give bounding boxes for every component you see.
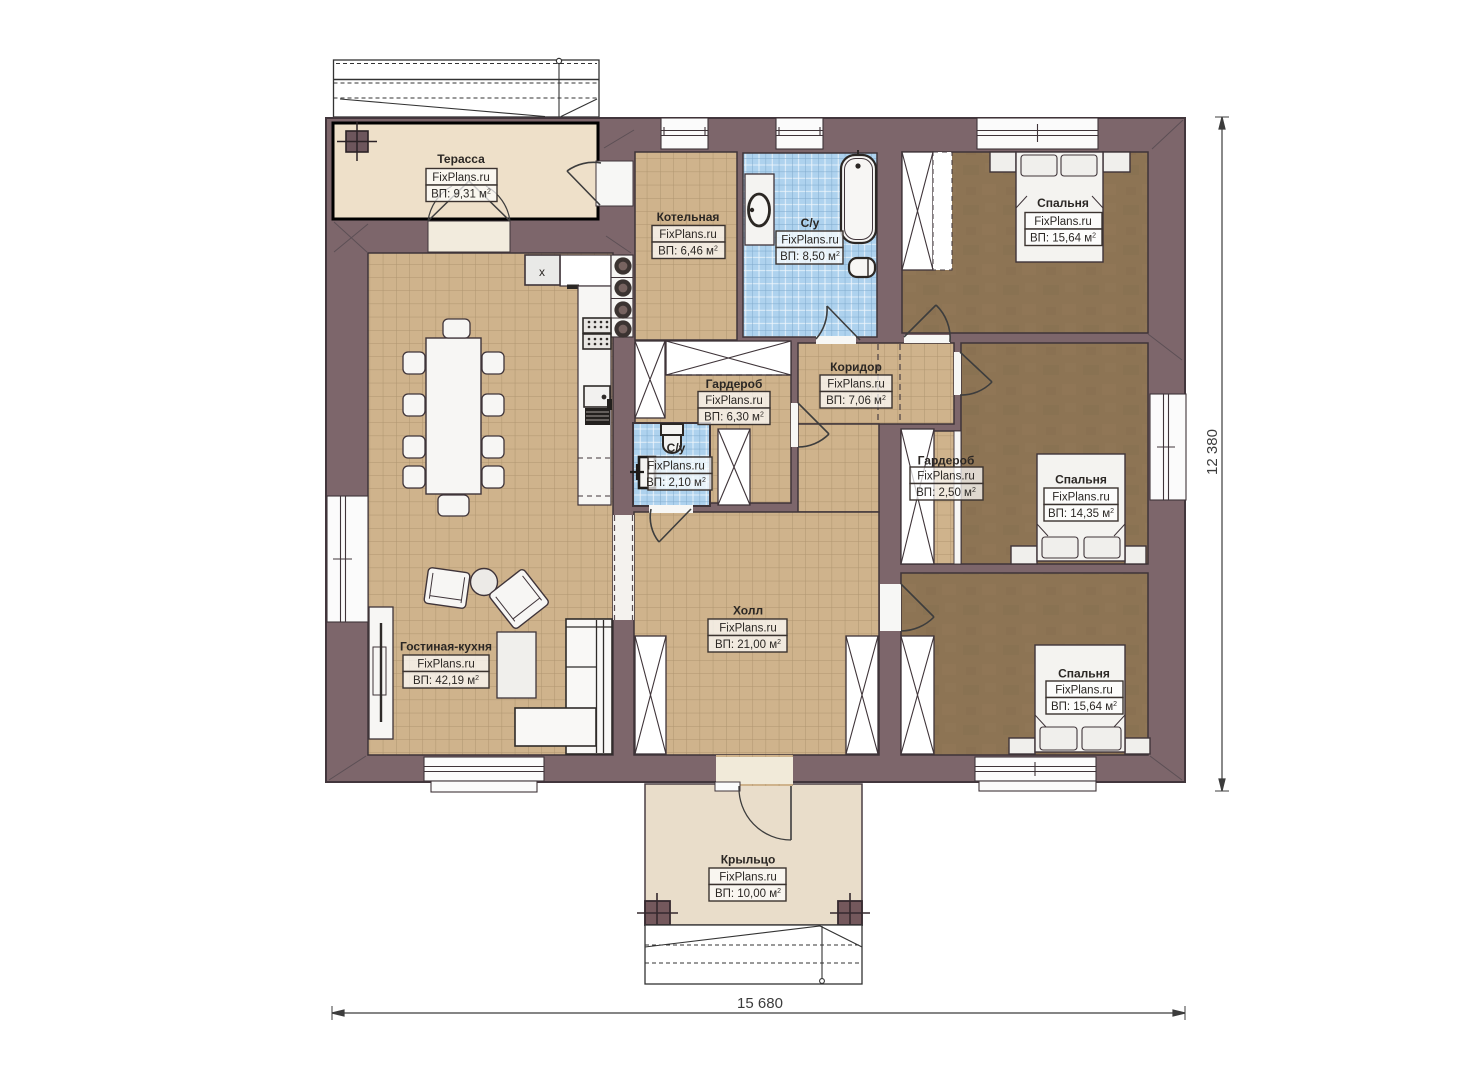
- svg-text:Спальня: Спальня: [1058, 667, 1110, 681]
- svg-text:FixPlans.ru: FixPlans.ru: [1055, 685, 1113, 697]
- svg-text:FixPlans.ru: FixPlans.ru: [647, 461, 705, 473]
- svg-text:Спальня: Спальня: [1055, 473, 1107, 487]
- svg-text:С/у: С/у: [667, 441, 686, 455]
- svg-text:Крыльцо: Крыльцо: [721, 853, 776, 867]
- svg-text:15 680: 15 680: [737, 995, 783, 1012]
- svg-text:Гостиная-кухня: Гостиная-кухня: [400, 640, 492, 654]
- svg-text:FixPlans.ru: FixPlans.ru: [432, 172, 490, 184]
- svg-text:FixPlans.ru: FixPlans.ru: [659, 229, 717, 241]
- svg-text:Терасса: Терасса: [437, 152, 485, 166]
- svg-text:12 380: 12 380: [1204, 429, 1221, 475]
- svg-text:FixPlans.ru: FixPlans.ru: [719, 623, 777, 635]
- svg-text:ВП: 8,50 м2: ВП: 8,50 м2: [780, 251, 840, 263]
- svg-text:FixPlans.ru: FixPlans.ru: [917, 471, 975, 483]
- svg-text:ВП: 14,35 м2: ВП: 14,35 м2: [1048, 508, 1114, 520]
- svg-text:ВП: 10,00 м2: ВП: 10,00 м2: [715, 888, 781, 900]
- svg-text:FixPlans.ru: FixPlans.ru: [1034, 216, 1092, 228]
- svg-text:FixPlans.ru: FixPlans.ru: [705, 395, 763, 407]
- svg-text:Гардероб: Гардероб: [706, 377, 763, 391]
- svg-text:ВП: 15,64 м2: ВП: 15,64 м2: [1051, 701, 1117, 713]
- svg-text:ВП: 2,10 м2: ВП: 2,10 м2: [646, 477, 706, 489]
- svg-text:Спальня: Спальня: [1037, 196, 1089, 210]
- svg-text:ВП: 6,30 м2: ВП: 6,30 м2: [704, 412, 764, 424]
- svg-text:ВП: 9,31 м2: ВП: 9,31 м2: [431, 189, 491, 201]
- svg-text:С/у: С/у: [801, 216, 820, 230]
- svg-text:ВП: 7,06 м2: ВП: 7,06 м2: [826, 395, 886, 407]
- svg-text:FixPlans.ru: FixPlans.ru: [719, 872, 777, 884]
- svg-text:ВП: 6,46 м2: ВП: 6,46 м2: [658, 246, 718, 258]
- svg-text:FixPlans.ru: FixPlans.ru: [827, 379, 885, 391]
- svg-text:ВП: 21,00 м2: ВП: 21,00 м2: [715, 639, 781, 651]
- svg-text:Котельная: Котельная: [657, 210, 720, 224]
- svg-text:ВП: 2,50 м2: ВП: 2,50 м2: [916, 487, 976, 499]
- svg-text:Холл: Холл: [733, 604, 763, 618]
- svg-text:FixPlans.ru: FixPlans.ru: [417, 659, 475, 671]
- svg-text:ВП: 42,19 м2: ВП: 42,19 м2: [413, 675, 479, 687]
- svg-text:Коридор: Коридор: [830, 360, 882, 374]
- svg-text:ВП: 15,64 м2: ВП: 15,64 м2: [1030, 233, 1096, 245]
- svg-text:Гардероб: Гардероб: [918, 454, 975, 468]
- svg-text:FixPlans.ru: FixPlans.ru: [1052, 492, 1110, 504]
- svg-text:x: x: [539, 265, 545, 279]
- svg-text:FixPlans.ru: FixPlans.ru: [781, 235, 839, 247]
